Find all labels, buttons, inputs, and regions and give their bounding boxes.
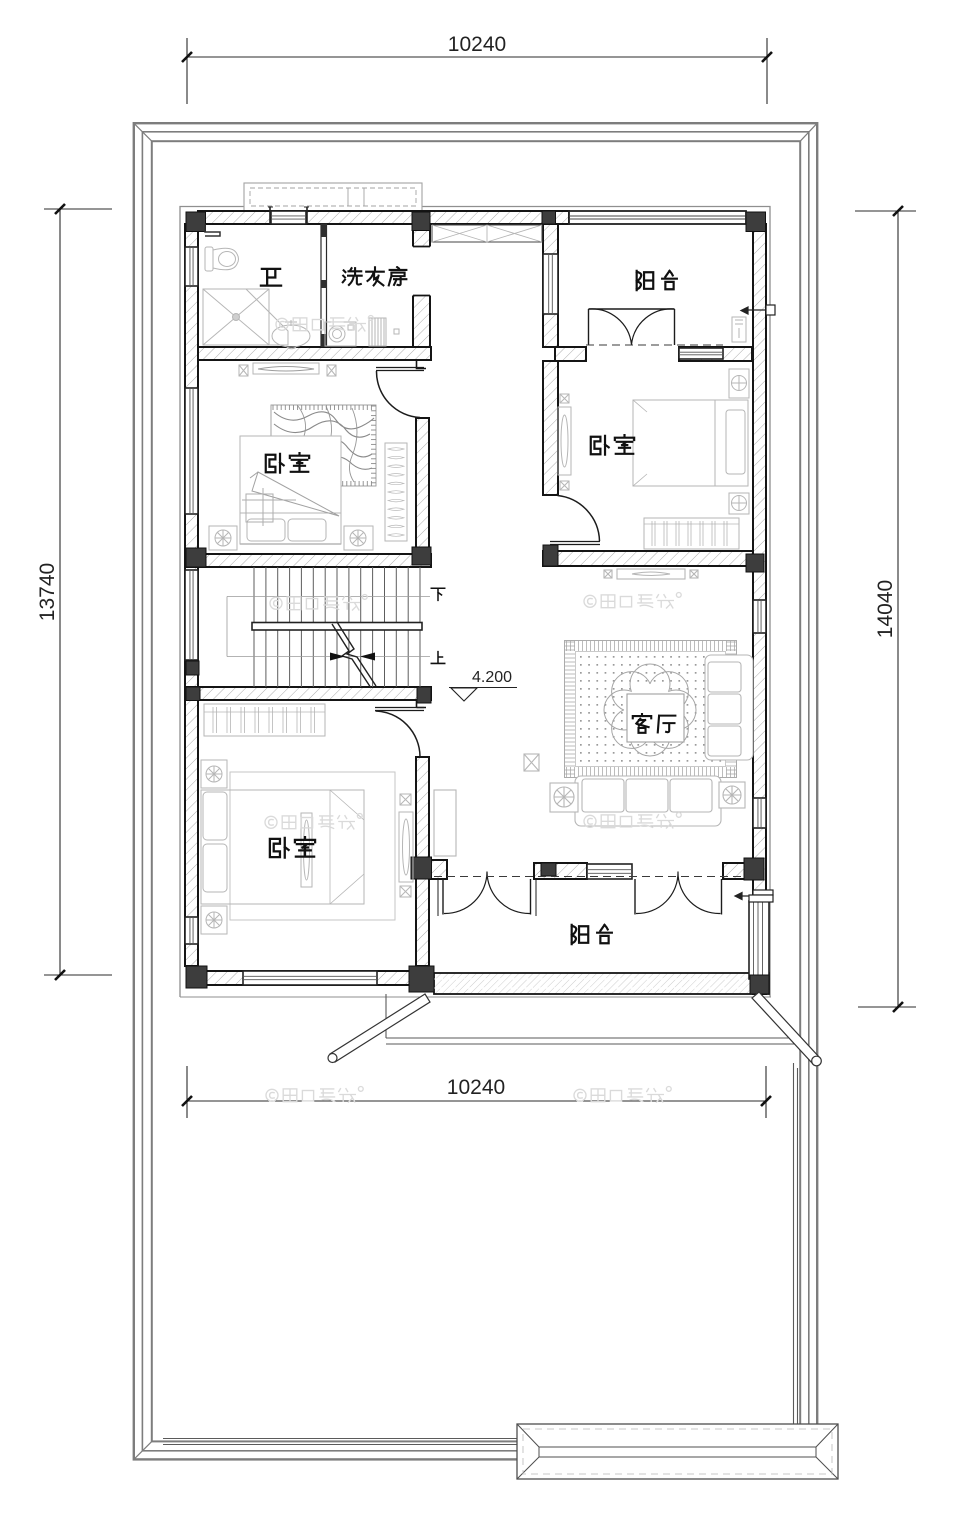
svg-text:13740: 13740 [36,563,59,621]
svg-text:10240: 10240 [448,33,506,56]
svg-text:4.200: 4.200 [472,669,512,686]
svg-text:10240: 10240 [447,1076,505,1099]
svg-text:14040: 14040 [874,580,897,638]
